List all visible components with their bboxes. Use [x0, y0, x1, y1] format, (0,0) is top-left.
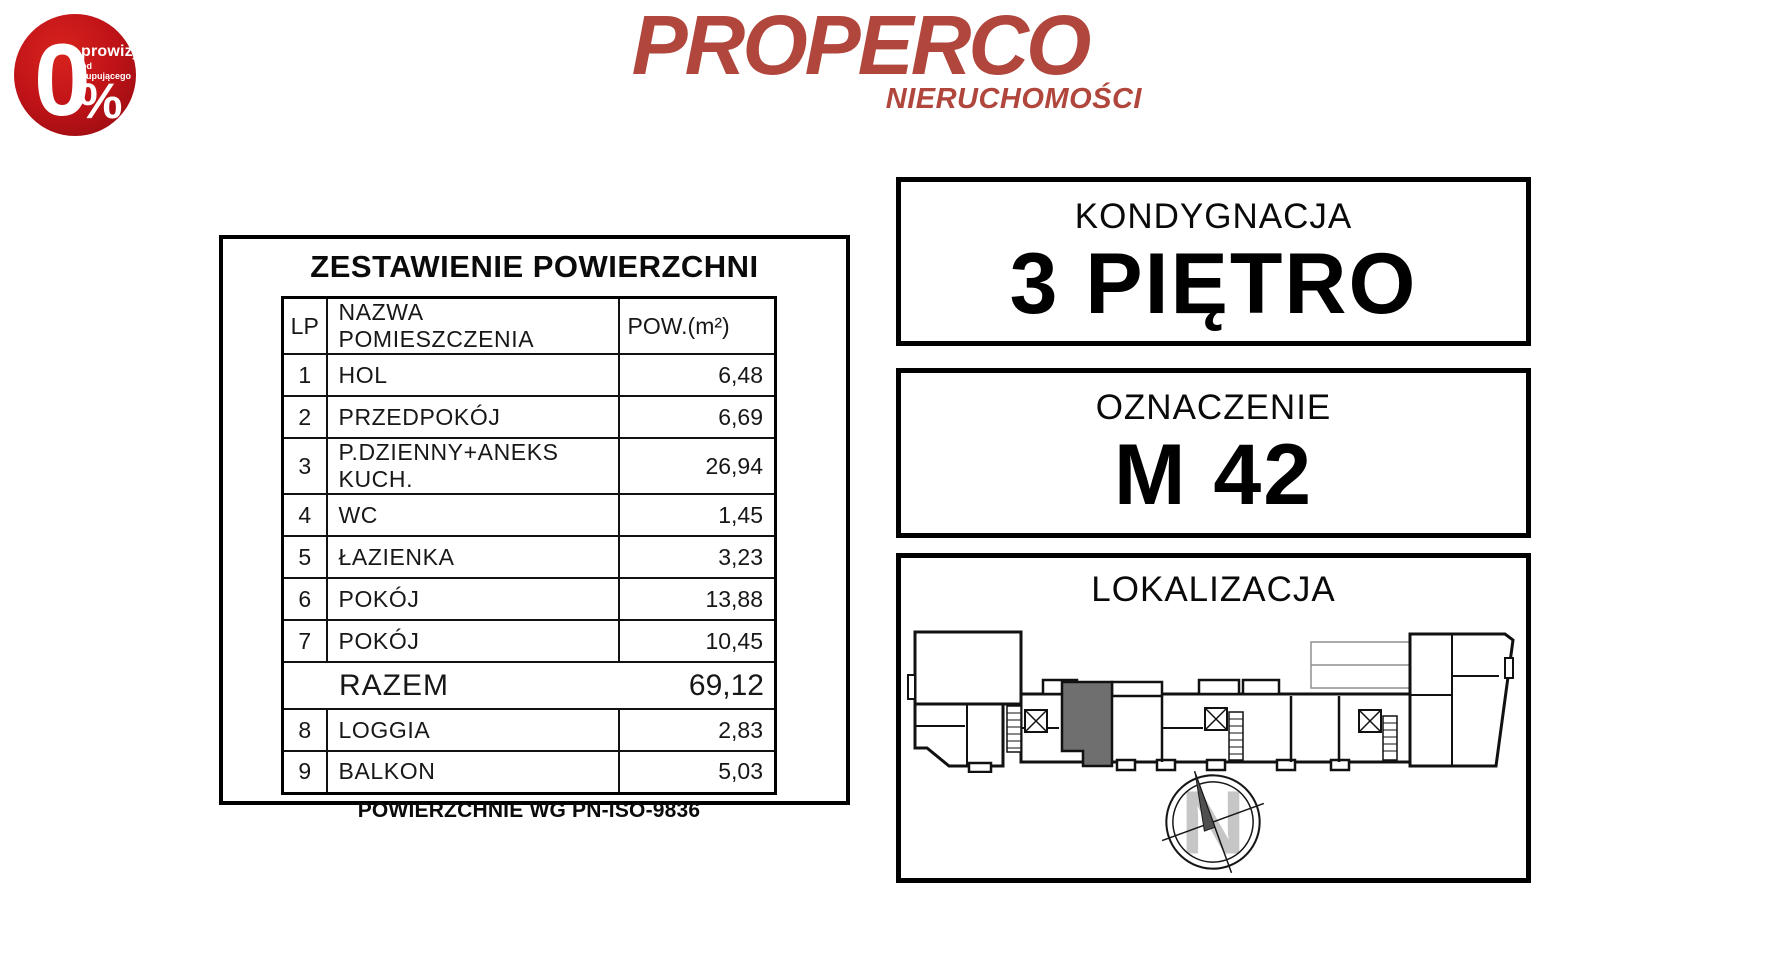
floor-label: KONDYGNACJA — [901, 197, 1526, 237]
cell-area: 2,83 — [619, 709, 776, 751]
cell-area: 6,48 — [619, 354, 776, 396]
floor-value: 3 PIĘTRO — [901, 239, 1526, 329]
cell-name: HOL — [327, 354, 619, 396]
table-row: 3 P.DZIENNY+ANEKS KUCH. 26,94 — [283, 438, 776, 494]
cell-name: PRZEDPOKÓJ — [327, 396, 619, 438]
cell-lp: 8 — [283, 709, 327, 751]
table-row: 2 PRZEDPOKÓJ 6,69 — [283, 396, 776, 438]
badge-line1: prowizji — [81, 43, 142, 61]
table-row: 4 WC 1,45 — [283, 494, 776, 536]
designation-label: OZNACZENIE — [901, 388, 1526, 428]
cell-lp: 6 — [283, 578, 327, 620]
brand-logo: PROPERCO NIERUCHOMOŚCI — [560, 2, 1160, 114]
total-label: RAZEM — [339, 669, 449, 703]
cell-area: 1,45 — [619, 494, 776, 536]
cell-lp: 1 — [283, 354, 327, 396]
table-header-row: LP NAZWA POMIESZCZENIA POW.(m²) — [283, 298, 776, 355]
cell-lp: 3 — [283, 438, 327, 494]
designation-value: M 42 — [901, 430, 1526, 520]
table-row: 9 BALKON 5,03 — [283, 751, 776, 793]
table-row: 1 HOL 6,48 — [283, 354, 776, 396]
compass-icon: N — [1157, 766, 1269, 878]
table-row: 7 POKÓJ 10,45 — [283, 620, 776, 662]
cell-area: 26,94 — [619, 438, 776, 494]
cell-name: P.DZIENNY+ANEKS KUCH. — [327, 438, 619, 494]
cell-lp: 2 — [283, 396, 327, 438]
designation-box: OZNACZENIE M 42 — [896, 368, 1531, 538]
cell-area: 3,23 — [619, 536, 776, 578]
table-row: 5 ŁAZIENKA 3,23 — [283, 536, 776, 578]
area-summary-panel: ZESTAWIENIE POWIERZCHNI LP NAZWA POMIESZ… — [219, 235, 850, 805]
area-table: LP NAZWA POMIESZCZENIA POW.(m²) 1 HOL 6,… — [281, 296, 777, 795]
cell-name: POKÓJ — [327, 620, 619, 662]
cell-name: POKÓJ — [327, 578, 619, 620]
header-name: NAZWA POMIESZCZENIA — [327, 298, 619, 355]
cell-lp: 9 — [283, 751, 327, 793]
area-summary-title: ZESTAWIENIE POWIERZCHNI — [223, 249, 846, 285]
zero-commission-badge: 0 % prowizji od kupującego — [14, 14, 136, 136]
total-value: 69,12 — [689, 669, 764, 703]
badge-line2: od kupującego — [81, 61, 136, 81]
cell-area: 6,69 — [619, 396, 776, 438]
floorplan-svg — [907, 620, 1519, 773]
cell-lp: 4 — [283, 494, 327, 536]
table-row: 6 POKÓJ 13,88 — [283, 578, 776, 620]
cell-lp: 7 — [283, 620, 327, 662]
table-row: 8 LOGGIA 2,83 — [283, 709, 776, 751]
cell-area: 10,45 — [619, 620, 776, 662]
floorplan-graphic — [907, 620, 1519, 773]
cell-area: 13,88 — [619, 578, 776, 620]
cell-name: WC — [327, 494, 619, 536]
header-lp: LP — [283, 298, 327, 355]
header-area: POW.(m²) — [619, 298, 776, 355]
table-footnote: POWIERZCHNIE WG PN-ISO-9836 — [281, 799, 777, 823]
location-box: LOKALIZACJA — [896, 553, 1531, 883]
cell-area: 5,03 — [619, 751, 776, 793]
total-row: RAZEM 69,12 — [283, 662, 776, 709]
cell-name: LOGGIA — [327, 709, 619, 751]
brand-name: PROPERCO — [560, 2, 1160, 88]
cell-name: ŁAZIENKA — [327, 536, 619, 578]
cell-name: BALKON — [327, 751, 619, 793]
cell-lp: 5 — [283, 536, 327, 578]
floor-box: KONDYGNACJA 3 PIĘTRO — [896, 177, 1531, 346]
location-label: LOKALIZACJA — [901, 570, 1526, 610]
